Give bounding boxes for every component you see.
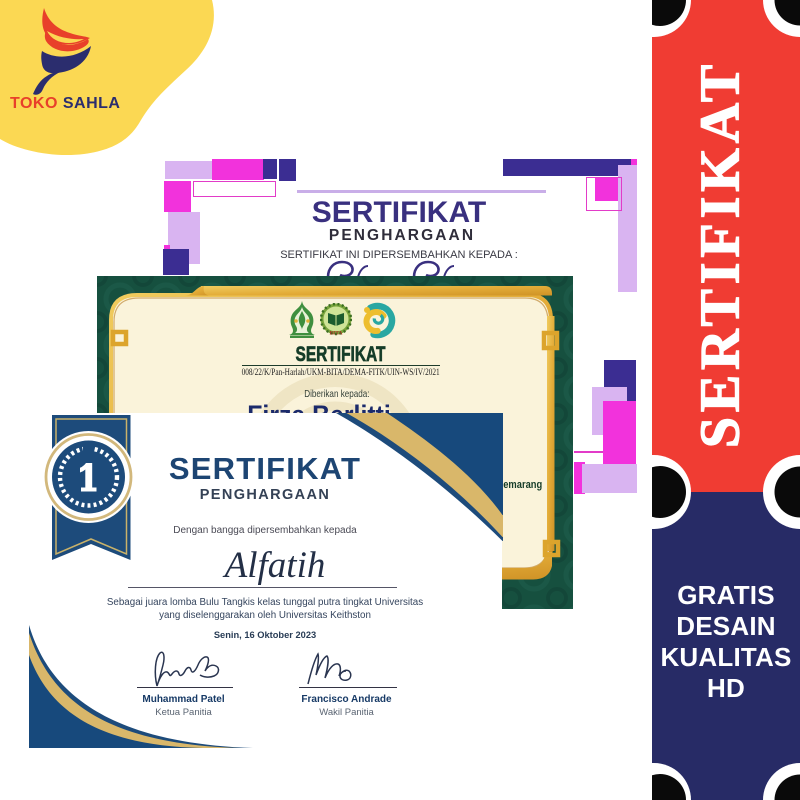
svg-text:BITA: BITA	[329, 331, 342, 337]
svg-text:TOKO SAHLA: TOKO SAHLA	[10, 95, 120, 112]
